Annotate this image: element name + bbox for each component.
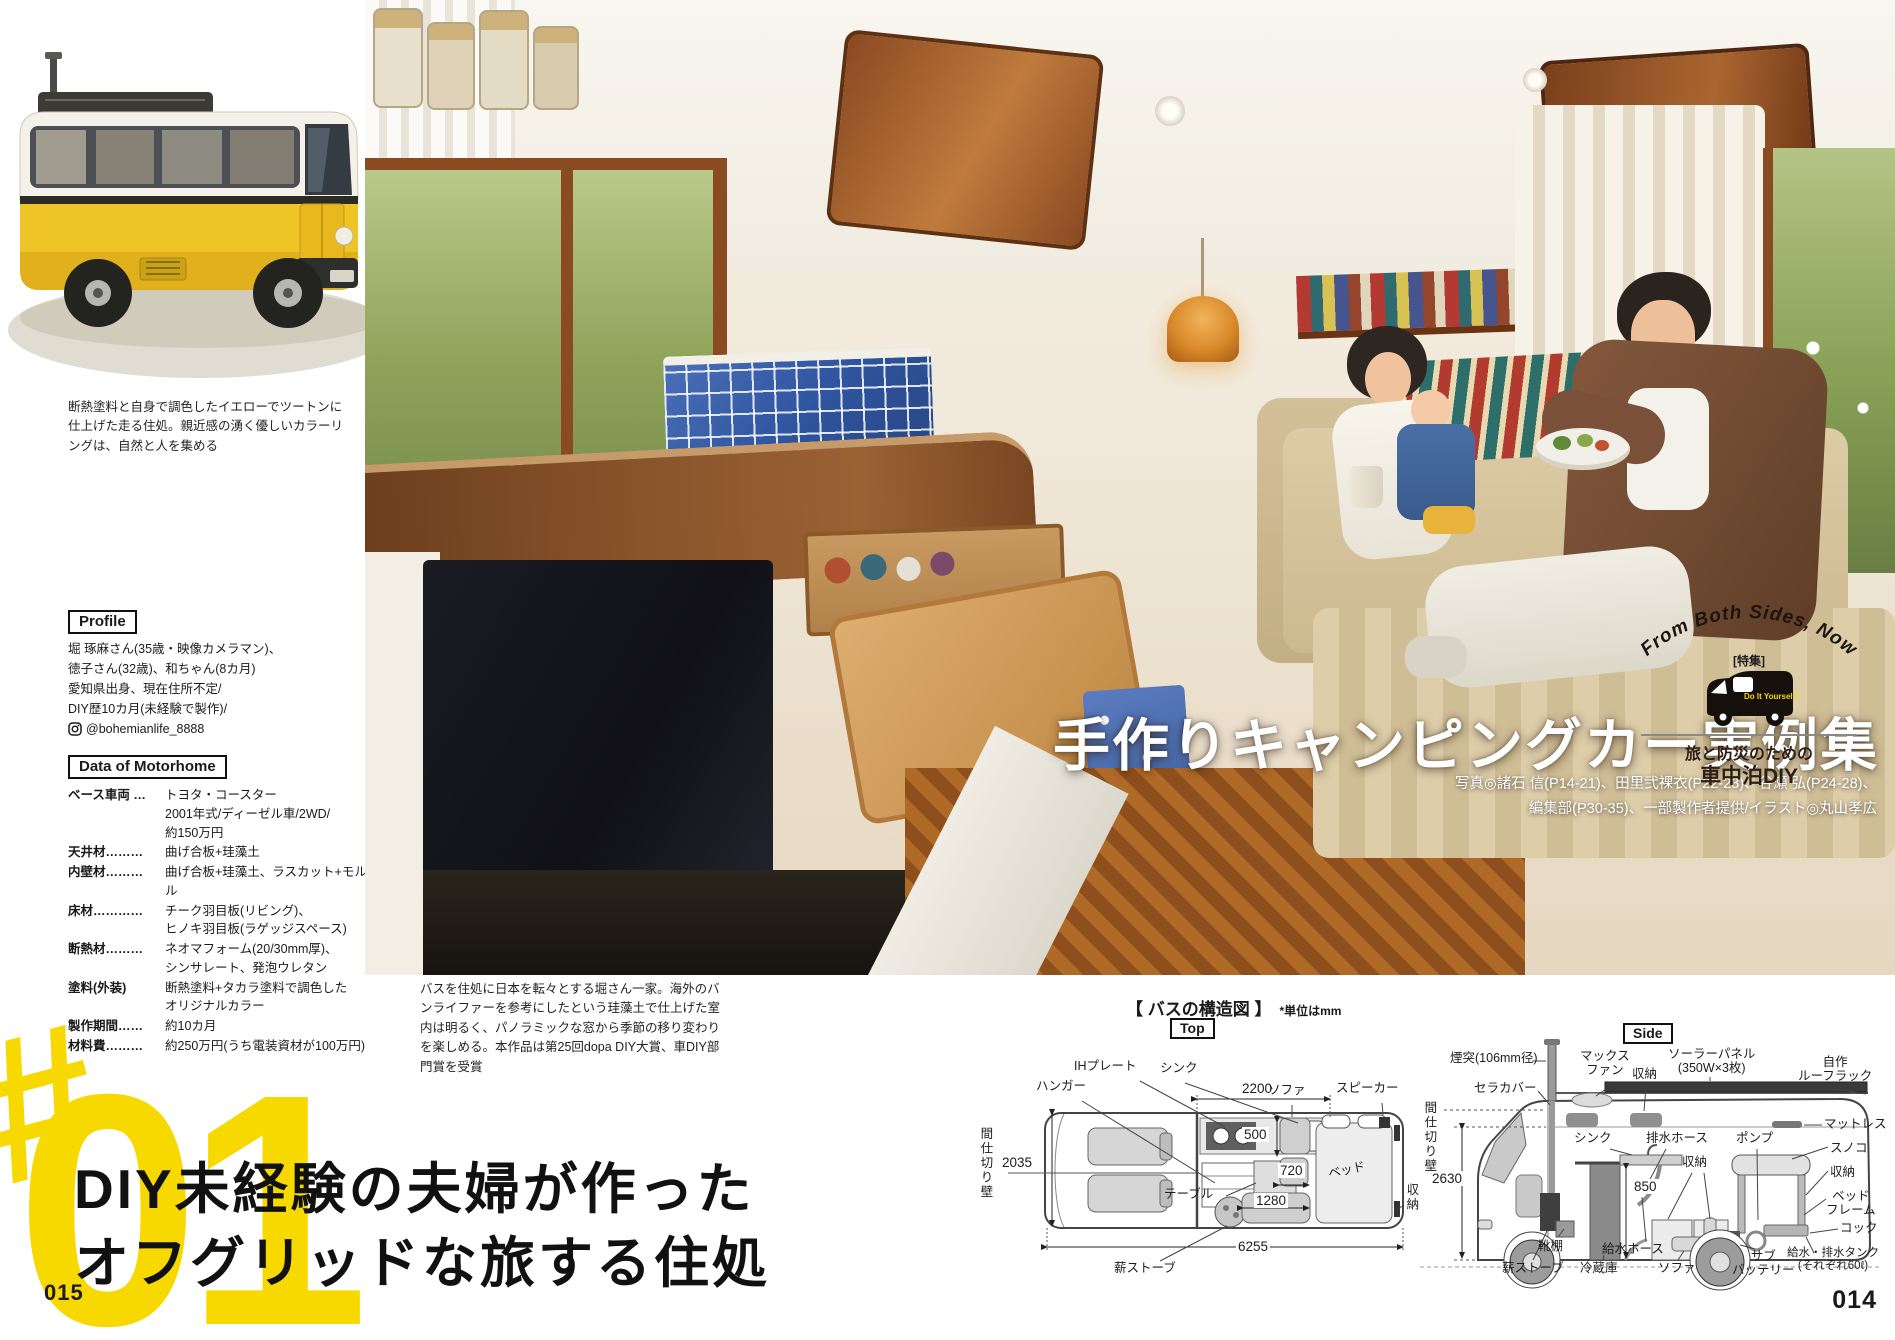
spec-row: 床材…………チーク羽目板(リビング)、 ヒノキ羽目板(ラゲッジスペース) <box>68 902 388 940</box>
label-hanger: ハンガー <box>1036 1079 1086 1093</box>
dim-6255: 6255 <box>1236 1239 1270 1254</box>
label-fridge: 冷蔵庫 <box>1580 1261 1618 1275</box>
label-sofa: ソファ <box>1268 1083 1306 1097</box>
jar <box>427 22 475 110</box>
lamp-cord <box>1201 238 1204 300</box>
profile-section: Profile 堀 琢麻さん(35歳・映像カメラマン)、 徳子さん(32歳)、和… <box>68 610 388 739</box>
salad-plate <box>1535 428 1630 470</box>
spec-label: 内壁材……… <box>68 863 165 901</box>
label-tanks: 給水・排水タンク (それぞれ60ℓ) <box>1787 1247 1879 1273</box>
photo-caption: バスを住処に日本を転々とする堀さん一家。海外のバンライファーを参考にしたという珪… <box>420 980 725 1077</box>
spec-value: 曲げ合板+珪藻土、ラスカット+モルタル <box>165 863 388 901</box>
top-diagram-tag: Top <box>1170 1018 1215 1039</box>
cup <box>930 551 955 576</box>
label-mattress: マットレス <box>1824 1117 1887 1131</box>
label-sunoko: スノコ <box>1830 1141 1868 1155</box>
label-sofa-side: ソファ <box>1658 1261 1696 1275</box>
label-max-fan: マックス ファン <box>1580 1049 1630 1078</box>
cup <box>896 557 921 582</box>
label-shoe-rack: 靴棚 <box>1538 1239 1563 1253</box>
spec-row: 天井材………曲げ合板+珪藻土 <box>68 843 388 862</box>
badge-tag: [特集] <box>1613 652 1885 669</box>
spec-value: トヨタ・コースター 2001年式/ディーゼル車/2WD/ 約150万円 <box>165 786 388 842</box>
spec-label: 断熱材……… <box>68 940 165 978</box>
salad <box>1577 434 1593 447</box>
bus-photo-illustration <box>0 0 395 400</box>
interior-photo: 手作りキャンピングカー実例集 写真◎諸石 信(P14-21)、田里弐裸衣(P22… <box>365 0 1895 975</box>
dim-500: 500 <box>1242 1127 1269 1142</box>
book-shelf <box>1296 268 1533 339</box>
label-solar-panel: ソーラーパネル (350W×3枚) <box>1668 1047 1755 1076</box>
label-cock: コック <box>1840 1221 1878 1235</box>
spec-value: ネオマフォーム(20/30mm厚)、 シンサレート、発泡ウレタン <box>165 940 388 978</box>
spec-row: 断熱材………ネオマフォーム(20/30mm厚)、 シンサレート、発泡ウレタン <box>68 940 388 978</box>
bus-photo <box>0 0 395 400</box>
left-column: Profile 堀 琢麻さん(35歳・映像カメラマン)、 徳子さん(32歳)、和… <box>68 610 388 1057</box>
label-partition: 間仕切り壁 <box>978 1127 992 1200</box>
label-wood-stove: 薪ストーブ <box>1114 1261 1176 1275</box>
page-number-left: 015 <box>44 1280 84 1306</box>
spec-value: チーク羽目板(リビング)、 ヒノキ羽目板(ラゲッジスペース) <box>165 902 388 940</box>
label-table: テーブル <box>1164 1187 1213 1201</box>
van-text: Do It Yourself! <box>1744 692 1798 701</box>
jar <box>373 8 423 108</box>
dim-1280: 1280 <box>1254 1193 1288 1208</box>
profile-line: DIY歴10カ月(未経験で製作)/ <box>68 699 388 719</box>
side-diagram: Side 煙突(106mm径) セラカバー マックス ファン 収納 ソーラーパネ… <box>1420 1015 1895 1333</box>
jar <box>479 10 529 110</box>
spec-row: 内壁材………曲げ合板+珪藻土、ラスカット+モルタル <box>68 863 388 901</box>
counter-shadow <box>423 870 943 975</box>
headline-line2: オフグリッドな旅する住処 <box>74 1236 770 1291</box>
ceiling-light <box>1155 96 1185 126</box>
label-sink: シンク <box>1160 1061 1198 1075</box>
profile-line: 徳子さん(32歳)、和ちゃん(8カ月) <box>68 659 388 679</box>
label-partition-side: 間仕切り壁 <box>1422 1101 1436 1174</box>
baby-legs <box>1423 506 1475 534</box>
spice-jars <box>365 0 595 125</box>
motorhome-data-section: Data of Motorhome ベース車両 …トヨタ・コースター 2001年… <box>68 755 388 1056</box>
label-cera-cover: セラカバー <box>1474 1081 1537 1095</box>
label-storage: 収納 <box>1404 1183 1418 1212</box>
socks <box>1405 636 1467 678</box>
salad <box>1595 440 1609 451</box>
badge-divider <box>1641 734 1857 736</box>
pendant-lamp <box>1167 296 1239 362</box>
profile-line: 愛知県出身、現在住所不定/ <box>68 679 388 699</box>
spec-value: 曲げ合板+珪藻土 <box>165 843 388 862</box>
ceiling-light <box>1523 68 1547 92</box>
magazine-spread: 断熱塗料と自身で調色したイエローでツートンに仕上げた走る住処。親近感の湧く優しい… <box>0 0 1895 1340</box>
motorhome-data-header: Data of Motorhome <box>68 755 227 779</box>
label-ih-plate: IHプレート <box>1074 1059 1137 1073</box>
side-diagram-tag: Side <box>1623 1023 1673 1044</box>
spec-row: ベース車両 …トヨタ・コースター 2001年式/ディーゼル車/2WD/ 約150… <box>68 786 388 842</box>
wood-hatch <box>825 29 1104 251</box>
spec-label: 床材………… <box>68 902 165 940</box>
instagram-icon <box>68 722 82 736</box>
dim-850: 850 <box>1632 1179 1659 1194</box>
label-wood-stove-side: 薪ストーブ <box>1502 1261 1564 1275</box>
label-water-hose: 給水ホース <box>1602 1242 1664 1256</box>
spec-row: 塗料(外装)断熱塗料+タカラ塗料で調色した オリジナルカラー <box>68 979 388 1017</box>
label-bed-frame: ベッド フレーム <box>1826 1189 1876 1218</box>
cup <box>860 554 887 581</box>
dim-2035: 2035 <box>1000 1155 1034 1170</box>
instagram-handle: @bohemianlife_8888 <box>86 719 204 739</box>
label-speaker: スピーカー <box>1336 1081 1399 1095</box>
label-drain-hose: 排水ホース <box>1646 1131 1708 1145</box>
badge-line2: 車中泊DIY <box>1613 760 1885 790</box>
top-diagram: Top ハンガー IHプレート シンク 2200 ソファ スピーカー 2035 … <box>830 1015 1422 1333</box>
jar <box>533 26 579 110</box>
label-sub-battery: サブ バッテリー <box>1732 1249 1795 1278</box>
label-pump: ポンプ <box>1736 1131 1773 1145</box>
bus-photo-caption: 断熱塗料と自身で調色したイエローでツートンに仕上げた走る住処。親近感の湧く優しい… <box>68 398 353 456</box>
dim-720: 720 <box>1278 1163 1305 1178</box>
mug <box>1349 466 1383 508</box>
spec-value: 断熱塗料+タカラ塗料で調色した オリジナルカラー <box>165 979 388 1017</box>
cup <box>824 557 851 584</box>
profile-header: Profile <box>68 610 137 634</box>
label-storage-right: 収納 <box>1830 1165 1855 1179</box>
label-storage-roof: 収納 <box>1632 1067 1657 1081</box>
label-storage-mid: 収納 <box>1682 1155 1707 1169</box>
woman-face <box>1365 352 1411 406</box>
van-icon: Do It Yourself! <box>1697 668 1801 728</box>
label-sink-side: シンク <box>1574 1131 1612 1145</box>
spec-label: ベース車両 … <box>68 786 165 842</box>
label-roof-rack: 自作 ルーフラック <box>1798 1055 1872 1084</box>
salad <box>1553 436 1571 450</box>
refrigerator <box>423 560 773 890</box>
profile-line: 堀 琢麻さん(35歳・映像カメラマン)、 <box>68 639 388 659</box>
label-chimney: 煙突(106mm径) <box>1450 1051 1538 1065</box>
spec-label: 塗料(外装) <box>68 979 165 1017</box>
dim-2630: 2630 <box>1430 1171 1464 1186</box>
spec-label: 天井材……… <box>68 843 165 862</box>
headline-line1: DIY未経験の夫婦が作った <box>74 1162 755 1217</box>
feature-badge: From Both Sides, Now [特集] Do It Yourself… <box>1613 588 1885 788</box>
